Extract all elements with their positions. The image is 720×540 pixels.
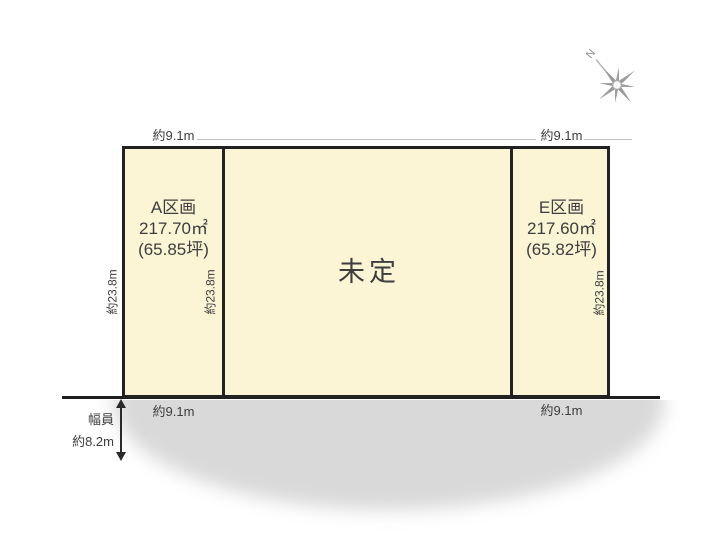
road-width-arrowhead-down bbox=[116, 452, 126, 461]
dimension-bottom-left: 約9.1m bbox=[122, 401, 225, 420]
top-dimension-line-left bbox=[197, 139, 536, 140]
parcel-a-label: A区画 217.70㎡ (65.85坪) bbox=[122, 197, 225, 260]
dimension-top-right: 約9.1m bbox=[513, 125, 610, 144]
parcel-e-area: 217.60㎡ bbox=[513, 218, 610, 239]
land-plot-diagram: A区画 217.70㎡ (65.85坪) 未定 E区画 217.60㎡ (65.… bbox=[0, 0, 720, 540]
north-compass-icon: N bbox=[580, 40, 656, 116]
road-width-arrow bbox=[120, 404, 122, 452]
road-width-title: 幅員 bbox=[60, 409, 114, 428]
road-width-arrowhead-up bbox=[116, 399, 126, 408]
parcel-a-name: A区画 bbox=[122, 197, 225, 218]
dimension-depth-left: 約23.8m bbox=[104, 269, 121, 314]
parcel-e-label: E区画 217.60㎡ (65.82坪) bbox=[513, 197, 610, 260]
dimension-top-left: 約9.1m bbox=[122, 125, 225, 144]
parcel-a-tsubo: (65.85坪) bbox=[122, 239, 225, 260]
parcel-center-label: 未定 bbox=[225, 250, 513, 289]
dimension-depth-right: 約23.8m bbox=[591, 270, 608, 315]
compass-north-label: N bbox=[584, 47, 598, 61]
parcel-e-tsubo: (65.82坪) bbox=[513, 239, 610, 260]
dimension-bottom-right: 約9.1m bbox=[513, 400, 610, 419]
road-width-value: 約8.2m bbox=[58, 431, 114, 450]
parcel-e-name: E区画 bbox=[513, 197, 610, 218]
dimension-depth-middle: 約23.8m bbox=[202, 269, 219, 314]
parcel-a-area: 217.70㎡ bbox=[122, 218, 225, 239]
compass-center-icon bbox=[613, 81, 621, 89]
